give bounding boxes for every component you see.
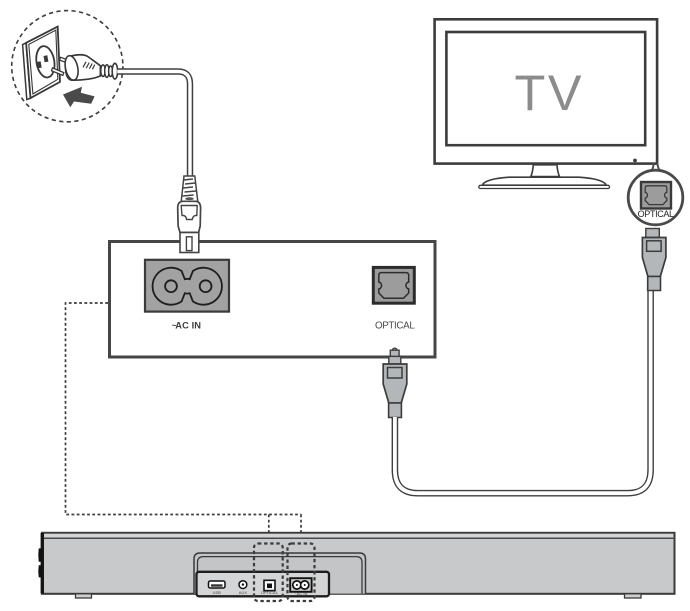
svg-text:~AC IN: ~AC IN	[294, 591, 307, 596]
svg-text:OPTICAL: OPTICAL	[375, 321, 415, 332]
svg-text:OPTICAL: OPTICAL	[261, 590, 279, 595]
svg-text:AUX: AUX	[239, 590, 248, 595]
svg-text:OPTICAL: OPTICAL	[638, 209, 674, 219]
svg-text:USB: USB	[213, 590, 222, 595]
svg-text:TV: TV	[515, 64, 585, 121]
svg-text:AC IN: AC IN	[175, 320, 201, 330]
